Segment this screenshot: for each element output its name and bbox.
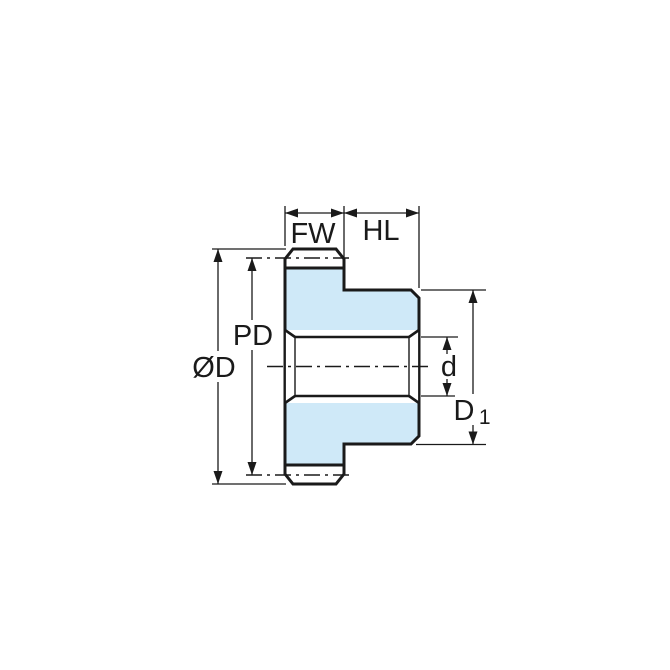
arrow-hl-left	[344, 209, 357, 218]
arrow-d-bottom	[443, 383, 452, 396]
arrow-fw-right	[331, 209, 344, 218]
arrow-d-top	[443, 337, 452, 350]
arrow-od-top	[214, 249, 223, 262]
arrow-od-bottom	[214, 471, 223, 484]
arrow-d1-top	[469, 290, 478, 303]
drawing-root: FW HL ØD PD d D 1	[192, 206, 493, 484]
label-bore-diameter: d	[441, 351, 457, 383]
arrow-d1-bottom	[469, 432, 478, 445]
arrow-hl-right	[406, 209, 419, 218]
label-face-width: FW	[290, 218, 336, 250]
arrow-pd-bottom	[248, 462, 257, 475]
label-outer-diameter: ØD	[192, 352, 236, 384]
arrow-fw-left	[285, 209, 298, 218]
gear-dimension-drawing: FW HL ØD PD d D 1	[0, 0, 670, 670]
label-pitch-diameter: PD	[233, 320, 273, 352]
drawing-svg: FW HL ØD PD d D 1	[0, 0, 670, 670]
label-hub-diameter-base: D	[453, 395, 474, 427]
label-hub-diameter-subscript: 1	[479, 406, 491, 429]
arrow-pd-top	[248, 258, 257, 271]
label-hub-length: HL	[362, 215, 399, 247]
